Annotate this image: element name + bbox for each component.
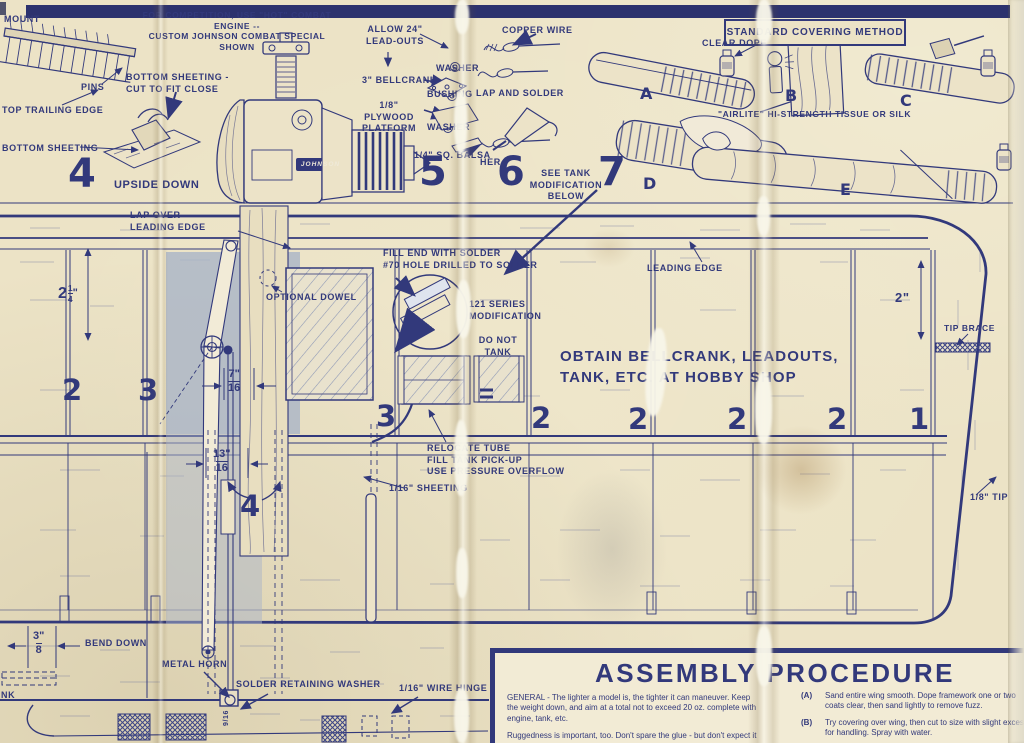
relocate-label: RELOCATE TUBE FILL TANK PICK-UP USE PRES… — [427, 443, 565, 478]
assembly-general-paragraph: Ruggedness is important, too. Don't spar… — [507, 731, 757, 743]
competition-note: FOR COMPETITION, USE "HOT" COMBAT ENGINE… — [130, 10, 344, 53]
dope-bottle — [720, 50, 734, 76]
assembly-step-text: Sand entire wing smooth. Dope framework … — [825, 691, 1024, 712]
covering-step-a: A — [640, 86, 653, 102]
rib-number: 1 — [909, 405, 929, 434]
bottom-sheeting-cut-label: BOTTOM SHEETING - CUT TO FIT CLOSE — [126, 72, 229, 95]
rib-number: 3 — [376, 402, 396, 431]
washer-top-label: WASHER — [436, 63, 479, 75]
lap-and-solder-label: LAP AND SOLDER — [476, 88, 564, 100]
dimension-13-16: 13" 16 — [213, 449, 230, 474]
top-trailing-edge-label: TOP TRAILING EDGE — [2, 105, 103, 117]
model-airplane-plan-scan: MOUNT FOR COMPETITION, USE "HOT" COMBAT … — [0, 0, 1024, 743]
see-tank-note: SEE TANK MODIFICATION BELOW — [528, 168, 604, 203]
fill-end-label: FILL END WITH SOLDER #70 HOLE DRILLED TO… — [383, 248, 537, 271]
bushing-label: BUSHING — [427, 89, 473, 101]
dim-den: 16 — [216, 461, 228, 475]
dope-bottle — [981, 50, 995, 76]
dimension-2in: 2" — [895, 290, 910, 307]
assembly-general-paragraph: GENERAL - The lighter a model is, the ti… — [507, 693, 757, 724]
detail-number-4: 4 — [240, 492, 260, 521]
edge-fragment-label: NK — [1, 690, 15, 702]
step-number-6: 6 — [497, 152, 525, 192]
dim-num: 3" — [33, 631, 44, 643]
bellcrank-label: 3" BELLCRANK — [362, 75, 437, 87]
engine-badge: JOHNSON — [298, 159, 343, 171]
covering-step-b: B — [785, 88, 798, 104]
rib-number: 2 — [827, 405, 847, 434]
do-not-tank-label: DO NOT TANK — [475, 335, 521, 358]
copper-wire-label: COPPER WIRE — [502, 25, 573, 37]
obtain-note: OBTAIN BELLCRANK, LEADOUTS, TANK, ETC. A… — [560, 346, 839, 388]
step-number-5: 5 — [419, 152, 447, 192]
bend-down-label: BEND DOWN — [85, 638, 147, 650]
assembly-step-b: (B) Try covering over wing, then cut to … — [801, 718, 1024, 739]
washer-bottom-label: WASHER — [427, 122, 470, 134]
series-modification-label: 121 SERIES MODIFICATION — [469, 299, 542, 322]
metal-horn-part — [220, 690, 238, 706]
dim-num: 13" — [213, 449, 230, 461]
assembly-step-tag: (B) — [801, 718, 825, 739]
do-not-tank — [478, 356, 520, 402]
dim-den: 16 — [228, 381, 240, 395]
tip-brace-bar — [936, 343, 990, 352]
tissue-note: "AIRLITE" HI-STRENGTH TISSUE OR SILK — [718, 109, 918, 120]
assembly-step-a: (A) Sand entire wing smooth. Dope framew… — [801, 691, 1024, 712]
assembly-step-text: Try covering over wing, then cut to size… — [825, 718, 1024, 739]
assembly-steps-text: (A) Sand entire wing smooth. Dope framew… — [801, 691, 1024, 743]
assembly-title: ASSEMBLY PROCEDURE — [565, 660, 985, 686]
tip-brace-label: TIP BRACE — [944, 323, 995, 334]
rib-number: 3 — [138, 376, 158, 405]
rib-number: 2 — [628, 405, 648, 434]
assembly-procedure-panel: ASSEMBLY PROCEDURE GENERAL - The lighter… — [490, 648, 1024, 743]
dim-den: 8 — [36, 643, 42, 657]
rib-number: 2 — [727, 405, 747, 434]
dim-whole: 2 — [58, 286, 67, 302]
upside-down-label: UPSIDE DOWN — [114, 178, 199, 192]
leading-edge-label: LEADING EDGE — [647, 263, 723, 275]
assembly-general-text: GENERAL - The lighter a model is, the ti… — [507, 693, 757, 743]
optional-dowel-label: OPTIONAL DOWEL — [266, 292, 357, 304]
metal-horn-label: METAL HORN — [162, 659, 227, 671]
assembly-step-tag: (A) — [801, 691, 825, 712]
clear-dope-label: CLEAR DOPE — [702, 38, 767, 50]
dimension-2-1-4: 2 14 " — [58, 284, 78, 304]
sheeting-label: 1/16" SHEETING — [389, 483, 468, 495]
wire-hinge-label: 1/16" WIRE HINGE — [399, 683, 487, 695]
covering-title: STANDARD COVERING METHOD — [727, 28, 904, 38]
dimension-7-16: 7" 16 — [228, 369, 240, 394]
fuel-tank — [286, 268, 373, 400]
allow-leadouts-label: ALLOW 24" LEAD-OUTS — [366, 24, 424, 47]
rib-number: 2 — [531, 404, 551, 433]
dim-unit: " — [73, 288, 78, 299]
tip-label: 1/8" TIP — [970, 492, 1008, 504]
rib-number: 2 — [62, 376, 82, 405]
pushrod-dim-label: 9/16 — [222, 710, 231, 726]
sheeting-strip — [366, 494, 376, 622]
covering-step-e: E — [840, 182, 852, 198]
lap-over-label: LAP OVER LEADING EDGE — [130, 210, 206, 233]
solder-washer-label: SOLDER RETAINING WASHER — [236, 679, 381, 691]
dimension-3-8: 3" 8 — [33, 631, 44, 656]
step-number-4: 4 — [68, 154, 96, 194]
step-number-7: 7 — [598, 152, 626, 192]
covering-step-c: C — [900, 93, 912, 109]
mount-label: MOUNT — [4, 14, 40, 26]
dim-num: 7" — [228, 369, 239, 381]
scan-right-edge — [1008, 0, 1024, 743]
plywood-platform-label: 1/8" PLYWOOD PLATFORM — [356, 100, 422, 135]
pins-label: PINS — [81, 82, 104, 94]
covering-step-d: D — [643, 176, 657, 192]
